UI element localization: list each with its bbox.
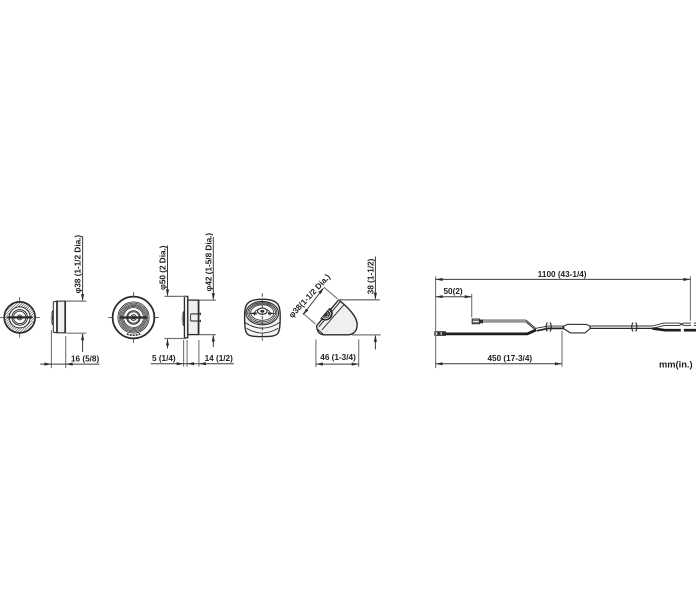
svg-text:50(2): 50(2) xyxy=(444,287,463,296)
svg-text:mm(in.): mm(in.) xyxy=(659,359,693,369)
svg-text:φ42 (1-5/8 Dia.): φ42 (1-5/8 Dia.) xyxy=(204,233,213,292)
svg-text:450 (17-3/4): 450 (17-3/4) xyxy=(488,354,533,363)
svg-text:16 (5/8): 16 (5/8) xyxy=(71,355,99,364)
svg-text:38 (1-1/2): 38 (1-1/2) xyxy=(367,258,376,294)
svg-text:1100 (43-1/4): 1100 (43-1/4) xyxy=(538,270,587,279)
svg-text:14 (1/2): 14 (1/2) xyxy=(205,354,233,363)
svg-text:φ50 (2 Dia.): φ50 (2 Dia.) xyxy=(159,245,168,290)
svg-text:46 (1-3/4): 46 (1-3/4) xyxy=(320,353,356,362)
svg-text:5 (1/4): 5 (1/4) xyxy=(152,354,176,363)
svg-text:φ38 (1-1/2 Dia.): φ38 (1-1/2 Dia.) xyxy=(74,235,83,294)
